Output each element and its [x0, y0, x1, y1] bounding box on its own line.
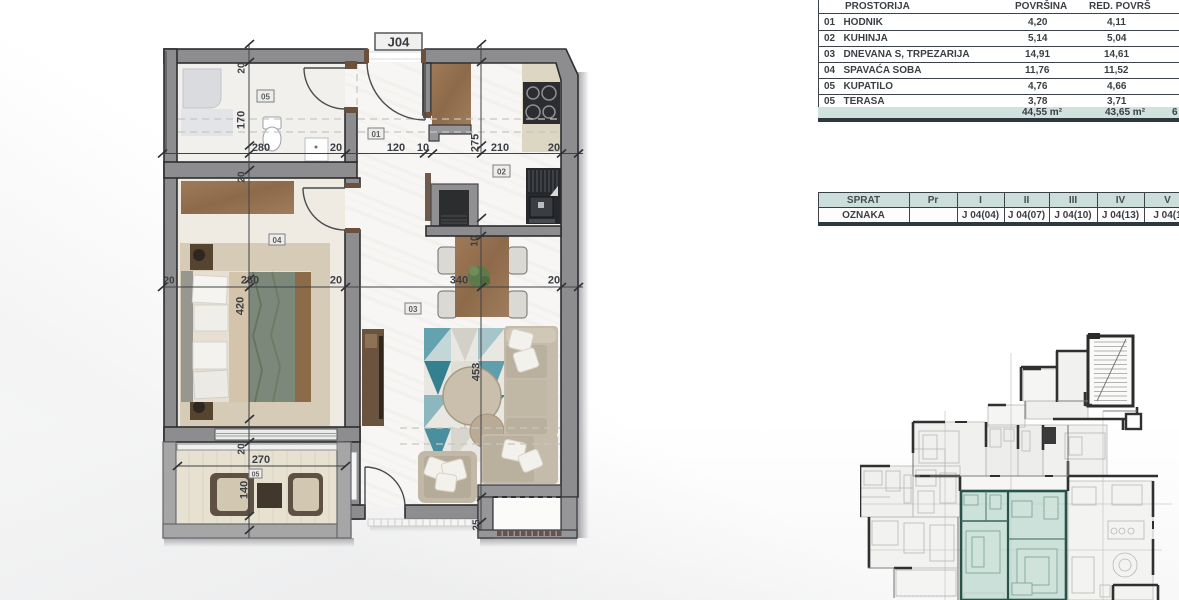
svg-text:03: 03 [409, 305, 418, 314]
svg-text:20: 20 [548, 142, 560, 154]
svg-text:J04: J04 [388, 35, 410, 50]
svg-text:120: 120 [387, 142, 405, 154]
svg-text:140: 140 [239, 481, 251, 499]
svg-text:453: 453 [471, 363, 483, 381]
svg-text:20: 20 [330, 142, 342, 154]
svg-text:20: 20 [330, 275, 342, 287]
svg-text:20: 20 [548, 275, 560, 287]
svg-text:275: 275 [470, 134, 482, 152]
svg-text:340: 340 [450, 275, 468, 287]
svg-text:20: 20 [163, 276, 175, 287]
svg-text:01: 01 [372, 130, 381, 139]
svg-text:280: 280 [252, 142, 270, 154]
svg-text:270: 270 [252, 454, 270, 466]
svg-text:04: 04 [273, 236, 282, 245]
svg-text:10: 10 [417, 142, 429, 154]
svg-text:05: 05 [261, 93, 270, 102]
svg-text:210: 210 [491, 142, 509, 154]
svg-text:10: 10 [470, 235, 481, 247]
svg-text:25: 25 [472, 519, 483, 531]
svg-text:280: 280 [241, 275, 259, 287]
svg-text:420: 420 [235, 297, 247, 315]
svg-text:05: 05 [252, 472, 260, 479]
svg-text:20: 20 [237, 443, 248, 455]
svg-text:20: 20 [237, 62, 248, 74]
svg-text:20: 20 [237, 171, 248, 183]
svg-text:02: 02 [497, 168, 506, 177]
svg-text:170: 170 [236, 111, 248, 129]
